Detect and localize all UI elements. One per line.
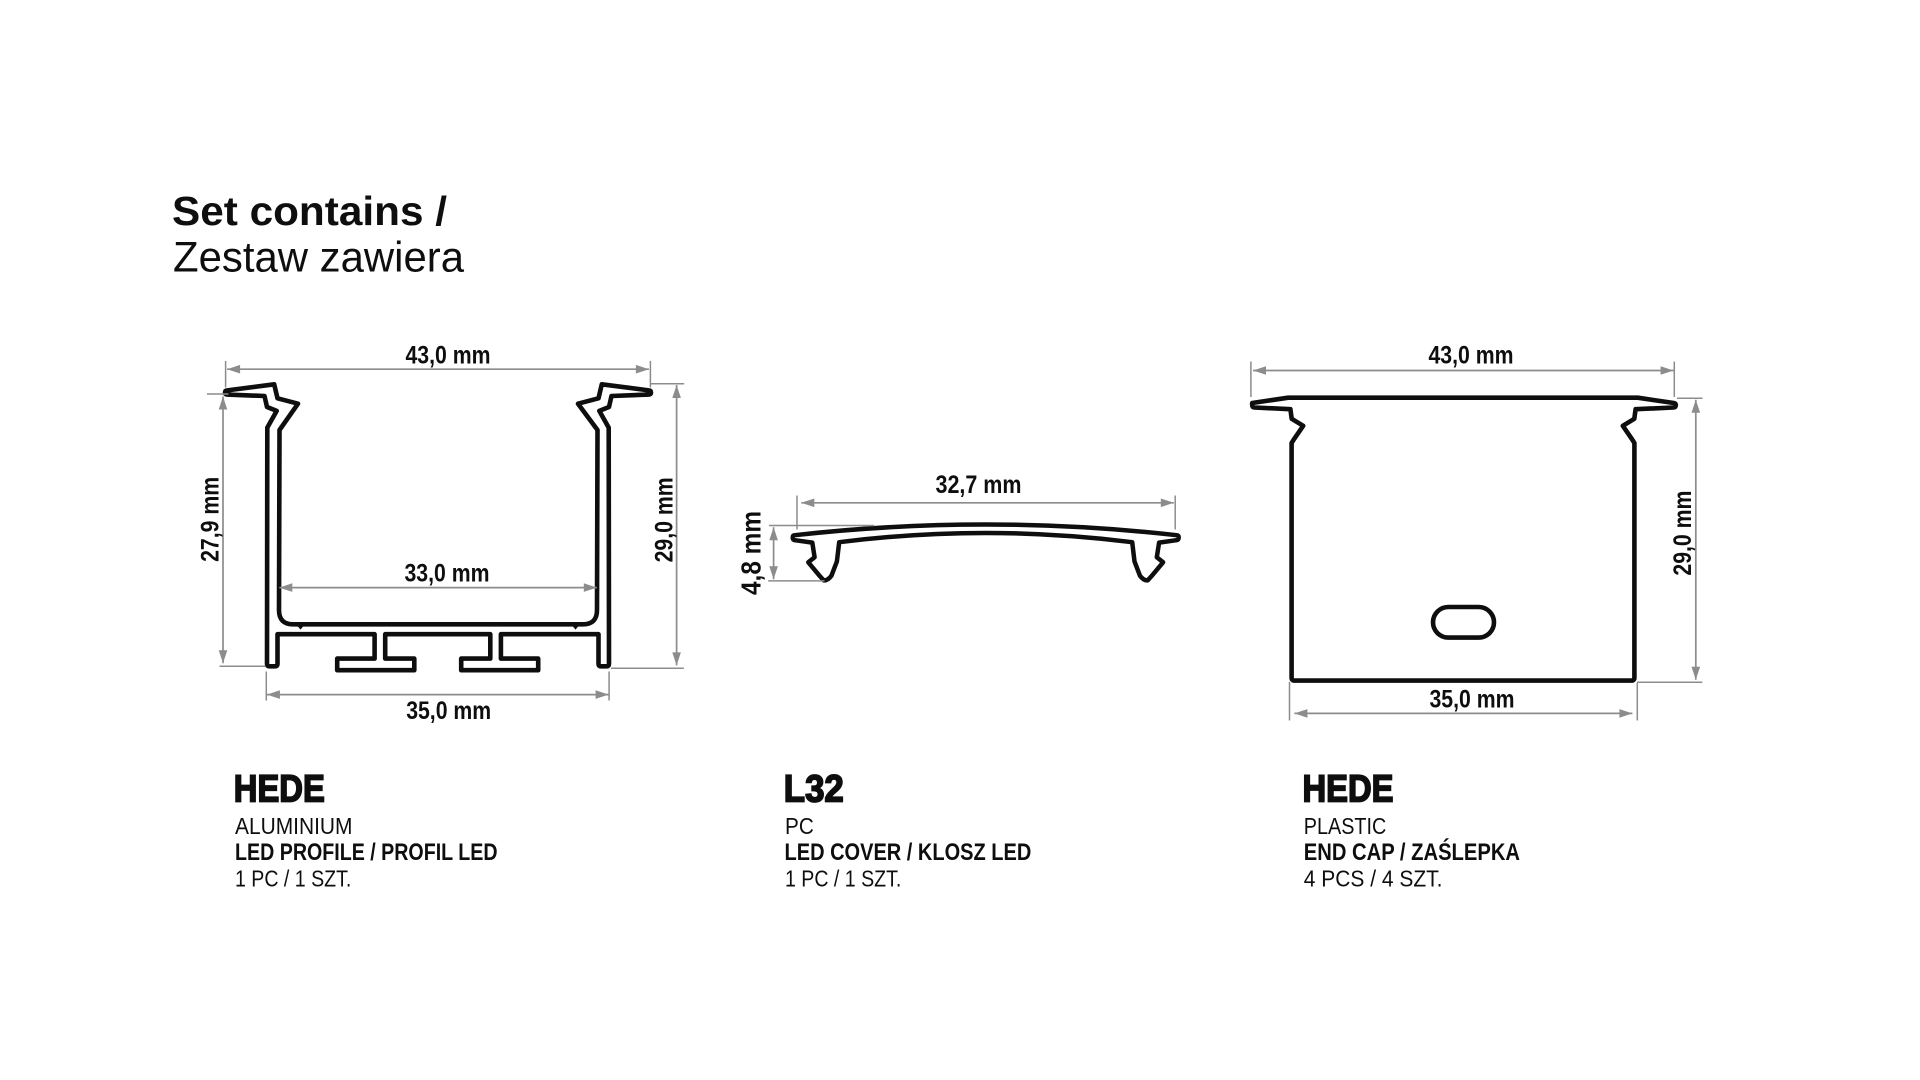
svg-text:27,9 mm: 27,9 mm	[197, 477, 225, 562]
svg-text:4,8 mm: 4,8 mm	[735, 511, 766, 595]
svg-text:35,0 mm: 35,0 mm	[406, 697, 491, 725]
svg-text:29,0 mm: 29,0 mm	[650, 477, 678, 562]
svg-text:1 PC / 1 SZT.: 1 PC / 1 SZT.	[785, 865, 901, 891]
svg-text:L32: L32	[784, 768, 844, 810]
svg-text:ALUMINIUM: ALUMINIUM	[235, 813, 353, 839]
svg-text:END CAP / ZAŚLEPKA: END CAP / ZAŚLEPKA	[1304, 838, 1520, 866]
svg-text:1 PC / 1 SZT.: 1 PC / 1 SZT.	[235, 865, 351, 891]
svg-text:HEDE: HEDE	[234, 768, 325, 810]
svg-text:Set contains /: Set contains /	[172, 188, 447, 234]
svg-text:43,0 mm: 43,0 mm	[1429, 341, 1514, 369]
svg-text:Zestaw zawiera: Zestaw zawiera	[173, 234, 464, 282]
svg-text:4 PCS / 4 SZT.: 4 PCS / 4 SZT.	[1304, 865, 1443, 891]
svg-text:29,0 mm: 29,0 mm	[1669, 491, 1697, 576]
svg-text:33,0 mm: 33,0 mm	[405, 559, 490, 587]
svg-text:LED COVER / KLOSZ LED: LED COVER / KLOSZ LED	[785, 839, 1032, 866]
svg-text:PLASTIC: PLASTIC	[1304, 813, 1387, 839]
svg-text:43,0 mm: 43,0 mm	[406, 341, 491, 369]
svg-text:LED PROFILE / PROFIL LED: LED PROFILE / PROFIL LED	[235, 839, 498, 866]
svg-text:PC: PC	[785, 813, 814, 839]
svg-text:32,7 mm: 32,7 mm	[936, 471, 1022, 499]
svg-text:35,0 mm: 35,0 mm	[1430, 685, 1515, 713]
svg-text:HEDE: HEDE	[1303, 768, 1394, 810]
